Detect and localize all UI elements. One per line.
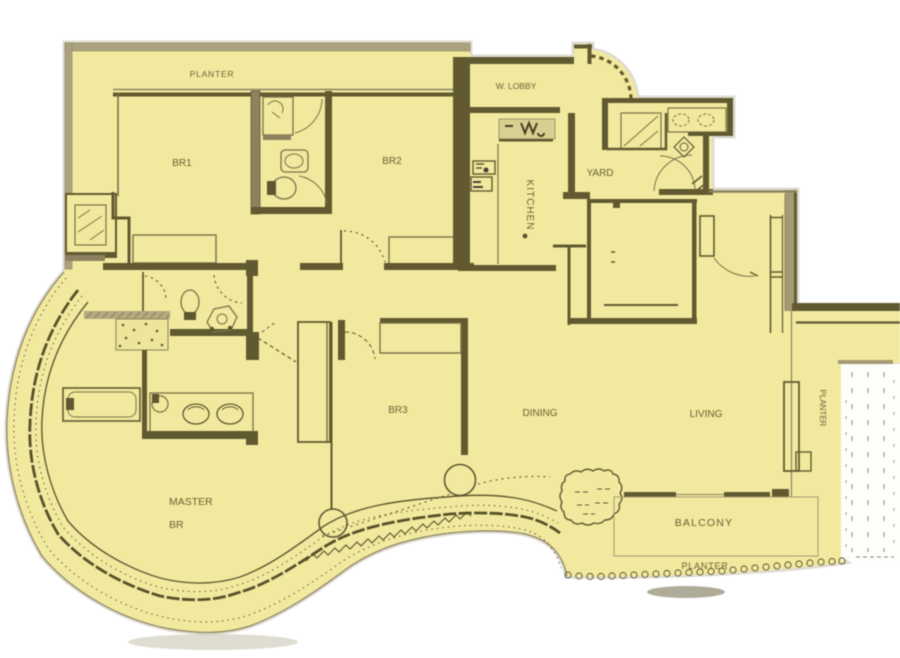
svg-text:W. LOBBY: W. LOBBY xyxy=(496,81,537,91)
svg-text:BR: BR xyxy=(169,519,184,531)
svg-text:BR2: BR2 xyxy=(382,156,402,167)
svg-text:KITCHEN: KITCHEN xyxy=(524,180,535,231)
svg-text:YARD: YARD xyxy=(586,168,613,179)
svg-text:PLANTER: PLANTER xyxy=(818,390,827,427)
svg-text:BR1: BR1 xyxy=(172,158,192,169)
svg-text:LIVING: LIVING xyxy=(690,409,723,420)
svg-text:BR3: BR3 xyxy=(388,405,408,416)
svg-text:DINING: DINING xyxy=(523,408,558,419)
svg-text:MASTER: MASTER xyxy=(169,496,213,508)
svg-text:BALCONY: BALCONY xyxy=(675,517,734,529)
svg-text:PLANTER: PLANTER xyxy=(190,69,235,79)
